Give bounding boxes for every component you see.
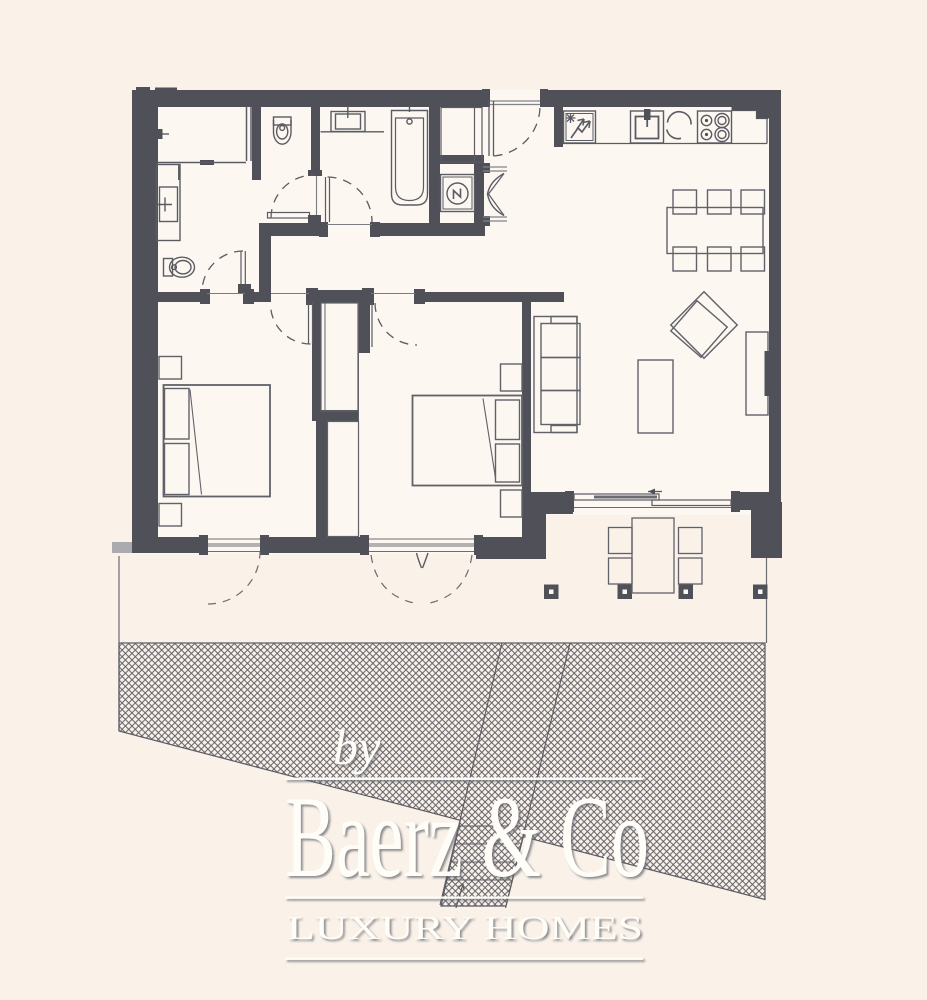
svg-text:by: by — [333, 719, 381, 775]
svg-text:LUXURY HOMES: LUXURY HOMES — [287, 910, 643, 947]
svg-text:Baerz & Co: Baerz & Co — [285, 773, 649, 902]
